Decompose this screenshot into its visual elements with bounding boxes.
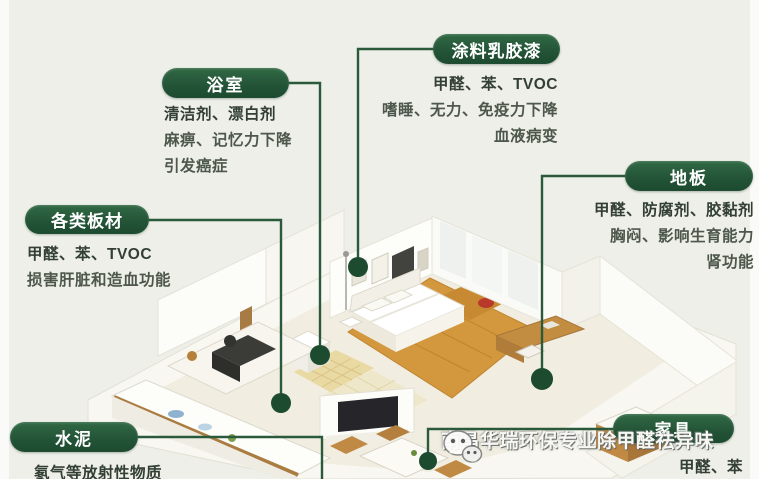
connector-lines — [0, 0, 759, 479]
connector-floor — [542, 176, 626, 377]
connector-paint — [358, 49, 434, 266]
connector-bathroom — [288, 83, 320, 354]
dot-floor — [531, 368, 553, 390]
dot-furniture — [419, 452, 437, 470]
dot-boards — [271, 393, 291, 413]
dot-bathroom — [310, 345, 330, 365]
dot-paint — [348, 257, 368, 277]
watermark: 南昌华瑞环保专业除甲醛祛异味 — [441, 426, 714, 453]
indoor-pollution-infographic: 浴室 清洁剂、漂白剂 麻痹、记忆力下降 引发癌症 涂料乳胶漆 甲醛、苯、TVOC… — [0, 0, 759, 479]
wechat-icon — [441, 426, 483, 468]
connector-boards — [147, 220, 281, 401]
connector-cement — [136, 437, 322, 479]
